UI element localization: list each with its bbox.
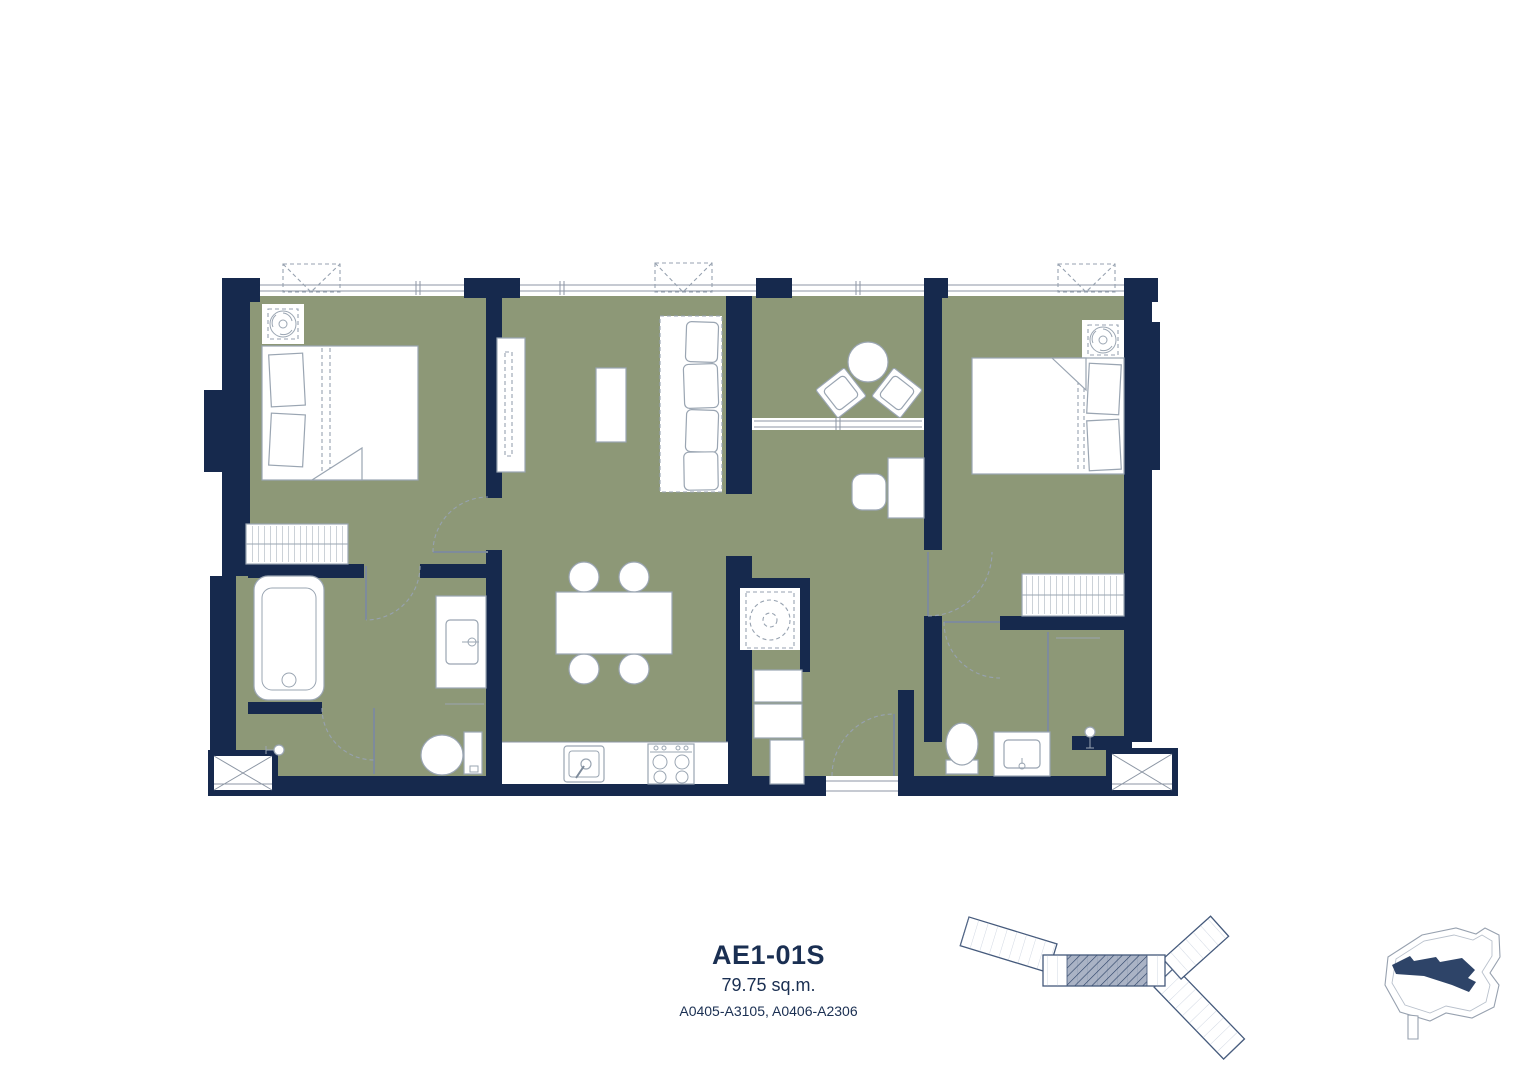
dining-chair <box>619 654 649 684</box>
floorplan-canvas <box>0 0 1536 1086</box>
washing-machine-icon <box>740 588 800 650</box>
desk-chair <box>852 474 886 510</box>
stove-4-burner <box>648 744 694 784</box>
ac-ledge-right <box>1106 748 1178 796</box>
double-bed-2 <box>972 358 1124 474</box>
dining-chair <box>569 654 599 684</box>
double-bed-1 <box>262 346 418 480</box>
balcony-table <box>848 342 888 382</box>
dining-chair <box>569 562 599 592</box>
site-plan <box>1385 928 1500 1039</box>
building-key-plan <box>960 916 1244 1059</box>
coffee-table <box>596 368 626 442</box>
unit-name: AE1-01S <box>576 940 961 971</box>
bathtub <box>254 576 324 700</box>
entry-mat <box>770 740 804 784</box>
caption: AE1-01S 79.75 sq.m. A0405-A3105, A0406-A… <box>576 940 961 1019</box>
storage-cabinets <box>754 670 802 738</box>
unit-area: 79.75 sq.m. <box>576 975 961 996</box>
ac-ledge-left <box>208 750 278 796</box>
kitchen-sink <box>564 746 604 782</box>
floorplan-page: AE1-01S 79.75 sq.m. A0405-A3105, A0406-A… <box>0 0 1536 1086</box>
window-band <box>256 280 1124 296</box>
key-plan-unit-highlight <box>1067 955 1147 986</box>
dining-chair <box>619 562 649 592</box>
unit-numbers: A0405-A3105, A0406-A2306 <box>576 1003 961 1019</box>
vanity-basin-2 <box>994 732 1050 776</box>
toilet-2 <box>946 723 978 774</box>
tv-console <box>497 338 525 472</box>
air-conditioner-icon-bedroom1 <box>262 304 304 344</box>
sofa <box>660 316 722 492</box>
sliding-door-window <box>752 418 924 430</box>
main-floor-plan <box>204 263 1178 796</box>
wardrobe-2 <box>1022 574 1124 616</box>
wardrobe-1 <box>246 524 348 564</box>
air-conditioner-icon-bedroom2 <box>1082 320 1124 360</box>
vanity-basin-1 <box>436 596 486 704</box>
toilet-1 <box>421 732 482 775</box>
desk <box>888 458 924 518</box>
